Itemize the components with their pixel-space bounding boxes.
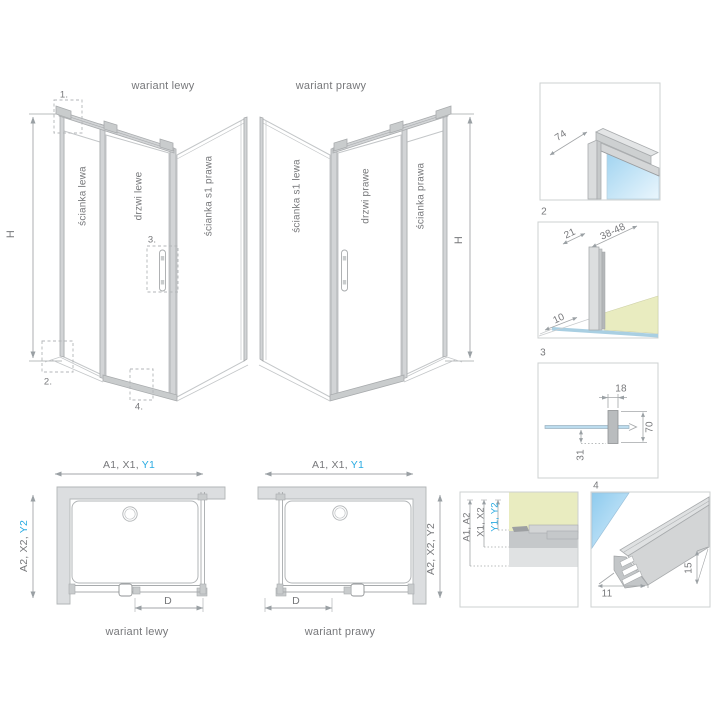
iso-left-height-label: H <box>5 230 17 238</box>
iso-left-wall-left-label: ścianka lewa <box>78 166 89 226</box>
iso-right-door-handle <box>342 250 348 291</box>
detail-3-dim-31: 31 <box>576 449 587 461</box>
technical-diagram-page: wariant lewy wariant prawy ścianka lewa … <box>0 0 720 720</box>
legend-row-x: X1, X2 <box>476 507 487 537</box>
plan-left-depth-dim-label: A2, X2, Y2 <box>18 520 30 572</box>
iso-view-left <box>29 100 248 401</box>
plan-right-tray <box>285 501 411 583</box>
callout-2-label: 2. <box>44 377 52 388</box>
iso-left-wall-right-label: ścianka s1 prawa <box>204 156 215 236</box>
iso-view-right <box>259 106 474 401</box>
iso-right-title: wariant prawy <box>296 80 366 92</box>
callout-1-label: 1. <box>60 90 68 101</box>
legend-row-a: A1, A2 <box>462 512 473 541</box>
iso-right-glass-panels <box>263 119 443 397</box>
plan-left-door-dim-label: D <box>164 595 172 607</box>
detail-3-handle <box>608 411 618 444</box>
iso-left-door-label: drzwi lewe <box>134 172 145 221</box>
callout-4-label: 4. <box>135 402 143 413</box>
iso-right-door-label: drzwi prawe <box>361 168 372 224</box>
iso-right-wall-right-label: ścianka prawa <box>416 163 427 230</box>
iso-left-glass-panels <box>64 119 244 397</box>
detail-3-number: 3 <box>540 348 546 359</box>
plan-right-width-dim-label: A1, X1, Y1 <box>312 459 364 471</box>
detail-2-number: 2 <box>541 207 547 218</box>
callout-3-label: 3. <box>148 235 156 246</box>
detail-4-dim-11: 11 <box>602 589 613 600</box>
plan-left-fixed-panel <box>201 492 205 596</box>
iso-left-title: wariant lewy <box>132 80 195 92</box>
iso-right-wall-left-label: ścianka s1 lewa <box>292 159 303 233</box>
plan-right-title: wariant prawy <box>305 626 375 638</box>
plan-left-handle <box>119 584 132 596</box>
plan-left-door-rail <box>69 584 206 596</box>
plan-right-fixed-panel <box>279 492 283 596</box>
iso-left-door-handle <box>160 250 166 291</box>
iso-right-height-label: H <box>453 236 465 244</box>
plan-view-right <box>258 474 440 612</box>
plan-right-door-dim-label: D <box>292 595 300 607</box>
detail-3-dim-18: 18 <box>615 384 627 395</box>
plan-right-depth-dim-label: A2, X2, Y2 <box>425 523 437 575</box>
detail-3-frame <box>538 363 658 478</box>
legend-row-y: Y1, Y2 <box>490 502 501 532</box>
iso-left-h-dim <box>29 114 62 361</box>
detail-4-number: 4 <box>593 481 599 492</box>
drawing-canvas <box>0 0 720 720</box>
detail-4-dim-15: 15 <box>684 562 695 574</box>
detail-3-dim-70: 70 <box>645 421 656 433</box>
plan-left-width-dim-label: A1, X1, Y1 <box>103 459 155 471</box>
plan-right-handle <box>351 584 364 596</box>
plan-view-left <box>33 474 225 612</box>
plan-left-title: wariant lewy <box>106 626 169 638</box>
